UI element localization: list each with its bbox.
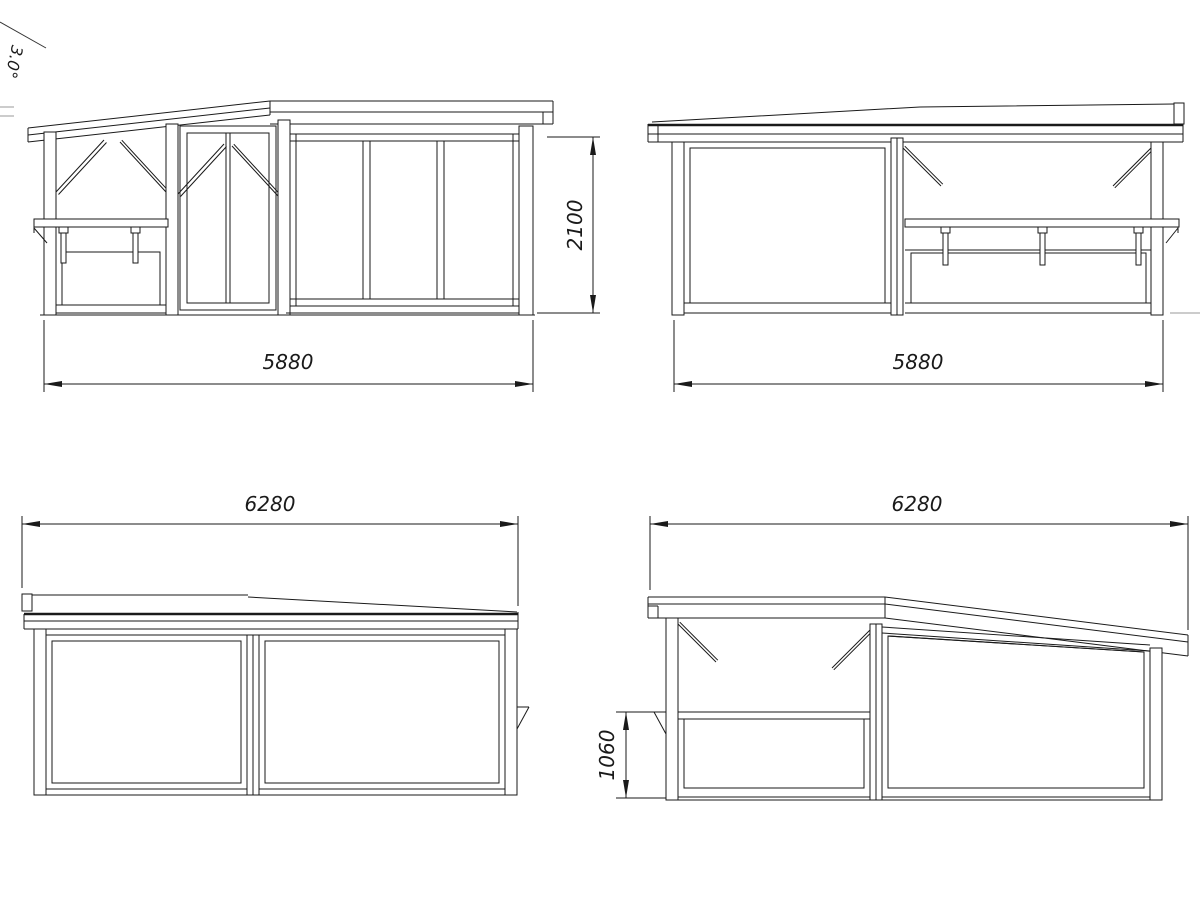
front-elevation-drawing (28, 101, 600, 392)
dimension-label-front-width: 5880 (263, 350, 314, 374)
dimension-label-rear-width: 5880 (893, 350, 944, 374)
drawing-sheet: 3.0° 5880 2100 5880 6280 6280 1060 (0, 0, 1200, 900)
dimension-label-right-depth: 6280 (892, 492, 943, 516)
dimension-label-counter-wall-height: 1060 (595, 730, 619, 781)
dimension-label-front-height: 2100 (563, 200, 587, 251)
dimension-label-left-depth: 6280 (245, 492, 296, 516)
left-side-elevation-drawing (22, 516, 529, 795)
rear-elevation-drawing (648, 103, 1200, 392)
right-side-elevation-drawing (616, 516, 1188, 800)
